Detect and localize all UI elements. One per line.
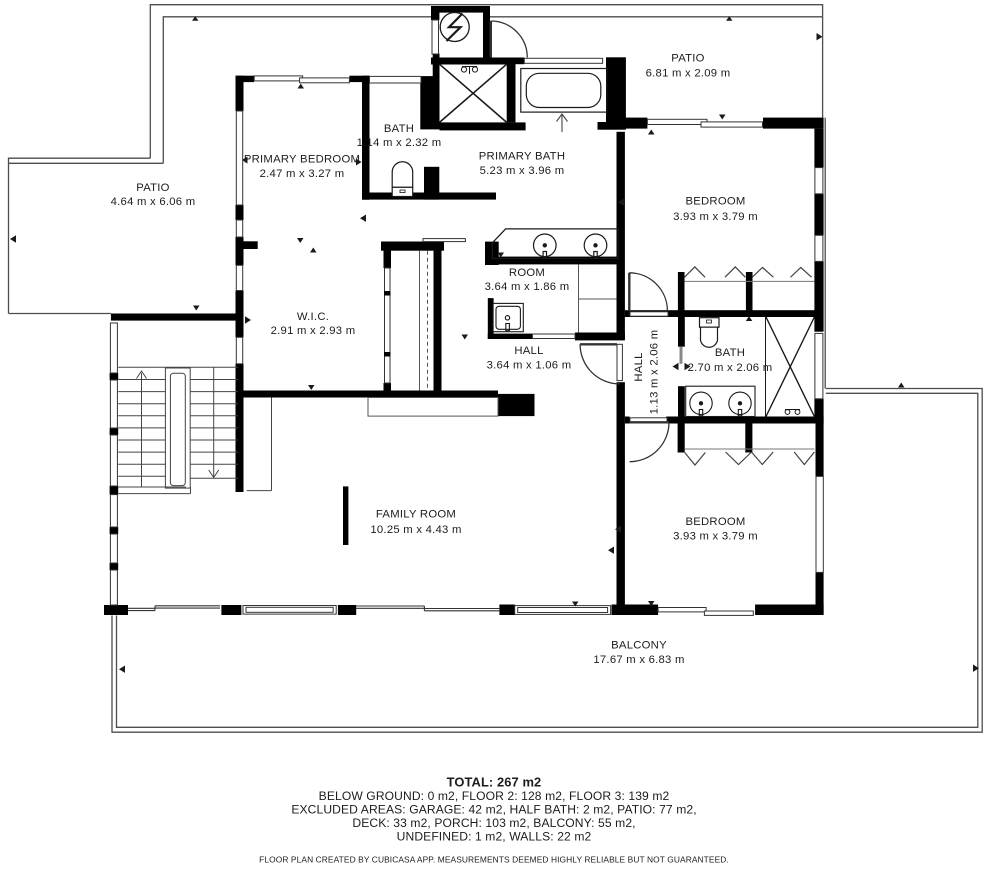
svg-text:3.93 m x 3.79 m: 3.93 m x 3.79 m <box>673 531 758 543</box>
svg-text:PRIMARY BATH: PRIMARY BATH <box>479 151 566 163</box>
svg-text:EXCLUDED AREAS: GARAGE: 42 m2,: EXCLUDED AREAS: GARAGE: 42 m2, HALF BATH… <box>291 803 696 817</box>
svg-text:TOTAL: 267 m2: TOTAL: 267 m2 <box>447 775 542 790</box>
svg-text:6.81 m x 2.09 m: 6.81 m x 2.09 m <box>646 68 731 80</box>
svg-text:BATH: BATH <box>715 347 745 359</box>
svg-text:1.14 m x 2.32 m: 1.14 m x 2.32 m <box>357 137 442 149</box>
svg-text:BEDROOM: BEDROOM <box>685 516 745 528</box>
svg-text:3.93 m x 3.79 m: 3.93 m x 3.79 m <box>673 211 758 223</box>
svg-text:FAMILY ROOM: FAMILY ROOM <box>376 509 456 521</box>
svg-text:2.70 m x 2.06 m: 2.70 m x 2.06 m <box>688 362 773 374</box>
svg-text:BALCONY: BALCONY <box>611 640 667 652</box>
svg-text:PATIO: PATIO <box>671 53 704 65</box>
svg-text:3.64 m x 1.86 m: 3.64 m x 1.86 m <box>485 281 570 293</box>
svg-text:3.64 m x 1.06 m: 3.64 m x 1.06 m <box>487 360 572 372</box>
svg-text:5.23 m x 3.96 m: 5.23 m x 3.96 m <box>480 165 565 177</box>
svg-text:UNDEFINED: 1 m2, WALLS: 22 m2: UNDEFINED: 1 m2, WALLS: 22 m2 <box>397 830 592 844</box>
svg-text:1.13 m x 2.06 m: 1.13 m x 2.06 m <box>649 330 661 415</box>
svg-text:2.91 m x 2.93 m: 2.91 m x 2.93 m <box>271 325 356 337</box>
svg-text:BELOW GROUND: 0 m2, FLOOR 2: 1: BELOW GROUND: 0 m2, FLOOR 2: 128 m2, FLO… <box>319 789 670 803</box>
svg-text:10.25 m x 4.43 m: 10.25 m x 4.43 m <box>370 524 461 536</box>
svg-text:W.I.C.: W.I.C. <box>297 311 329 323</box>
svg-text:HALL: HALL <box>514 345 543 357</box>
svg-text:PRIMARY BEDROOM: PRIMARY BEDROOM <box>244 154 360 166</box>
svg-text:4.64 m x 6.06 m: 4.64 m x 6.06 m <box>111 196 196 208</box>
svg-text:BEDROOM: BEDROOM <box>685 196 745 208</box>
svg-text:PATIO: PATIO <box>136 182 169 194</box>
svg-text:ROOM: ROOM <box>509 267 545 279</box>
svg-text:BATH: BATH <box>384 123 414 135</box>
svg-text:HALL: HALL <box>633 352 645 381</box>
svg-text:FLOOR PLAN CREATED BY CUBICASA: FLOOR PLAN CREATED BY CUBICASA APP. MEAS… <box>259 855 729 865</box>
svg-text:DECK: 33 m2, PORCH: 103 m2, BA: DECK: 33 m2, PORCH: 103 m2, BALCONY: 55 … <box>352 816 635 830</box>
svg-text:2.47 m x 3.27 m: 2.47 m x 3.27 m <box>260 168 345 180</box>
svg-text:17.67 m x 6.83 m: 17.67 m x 6.83 m <box>593 654 684 666</box>
